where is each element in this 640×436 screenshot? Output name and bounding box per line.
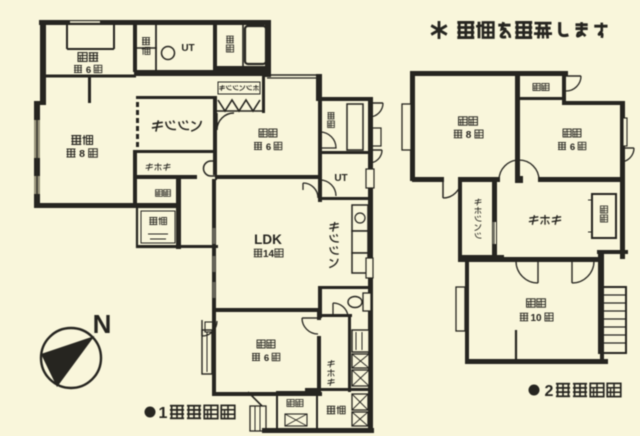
svg-text:6: 6	[86, 65, 91, 76]
svg-text:LDK: LDK	[254, 232, 282, 247]
svg-text:10: 10	[530, 313, 542, 324]
svg-text:6: 6	[266, 142, 271, 153]
svg-text:14: 14	[263, 249, 275, 260]
svg-text:UT: UT	[181, 43, 194, 54]
svg-text:UT: UT	[334, 173, 347, 184]
svg-text:8: 8	[466, 130, 472, 141]
svg-text:2: 2	[545, 383, 554, 400]
svg-text:6: 6	[570, 142, 575, 153]
svg-text:N: N	[93, 309, 112, 339]
svg-text:6: 6	[264, 353, 269, 364]
svg-text:8: 8	[79, 148, 85, 160]
svg-text:1: 1	[159, 405, 168, 422]
